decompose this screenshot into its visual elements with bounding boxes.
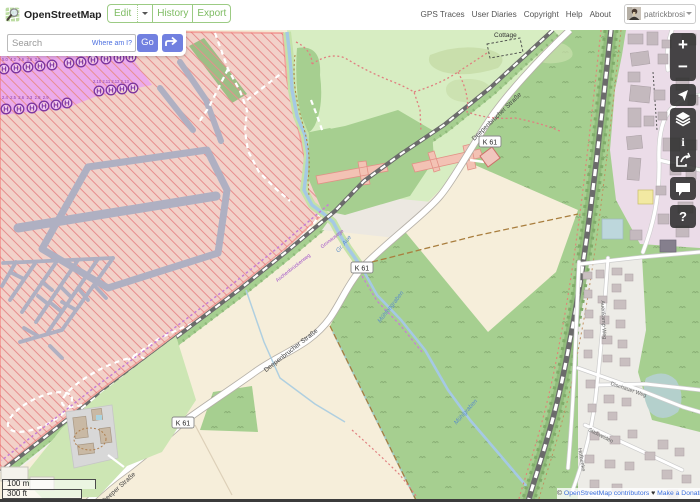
svg-text:K 61: K 61 [483, 140, 498, 147]
svg-text:K 61: K 61 [355, 266, 370, 273]
svg-text:2.4 2.5 2.6 2.3 2.8 2.9: 2.4 2.5 2.6 2.3 2.8 2.9 [2, 95, 49, 100]
svg-text:Cottage: Cottage [494, 32, 517, 39]
svg-text:5.0 4.2 4.6 3.6 3.5: 5.0 4.2 4.6 3.6 3.5 [2, 57, 41, 62]
svg-text:K 61: K 61 [176, 421, 191, 428]
svg-text:i: i [681, 135, 685, 149]
svg-text:2.10 2.11 2.12 2.13: 2.10 2.11 2.12 2.13 [93, 79, 129, 84]
